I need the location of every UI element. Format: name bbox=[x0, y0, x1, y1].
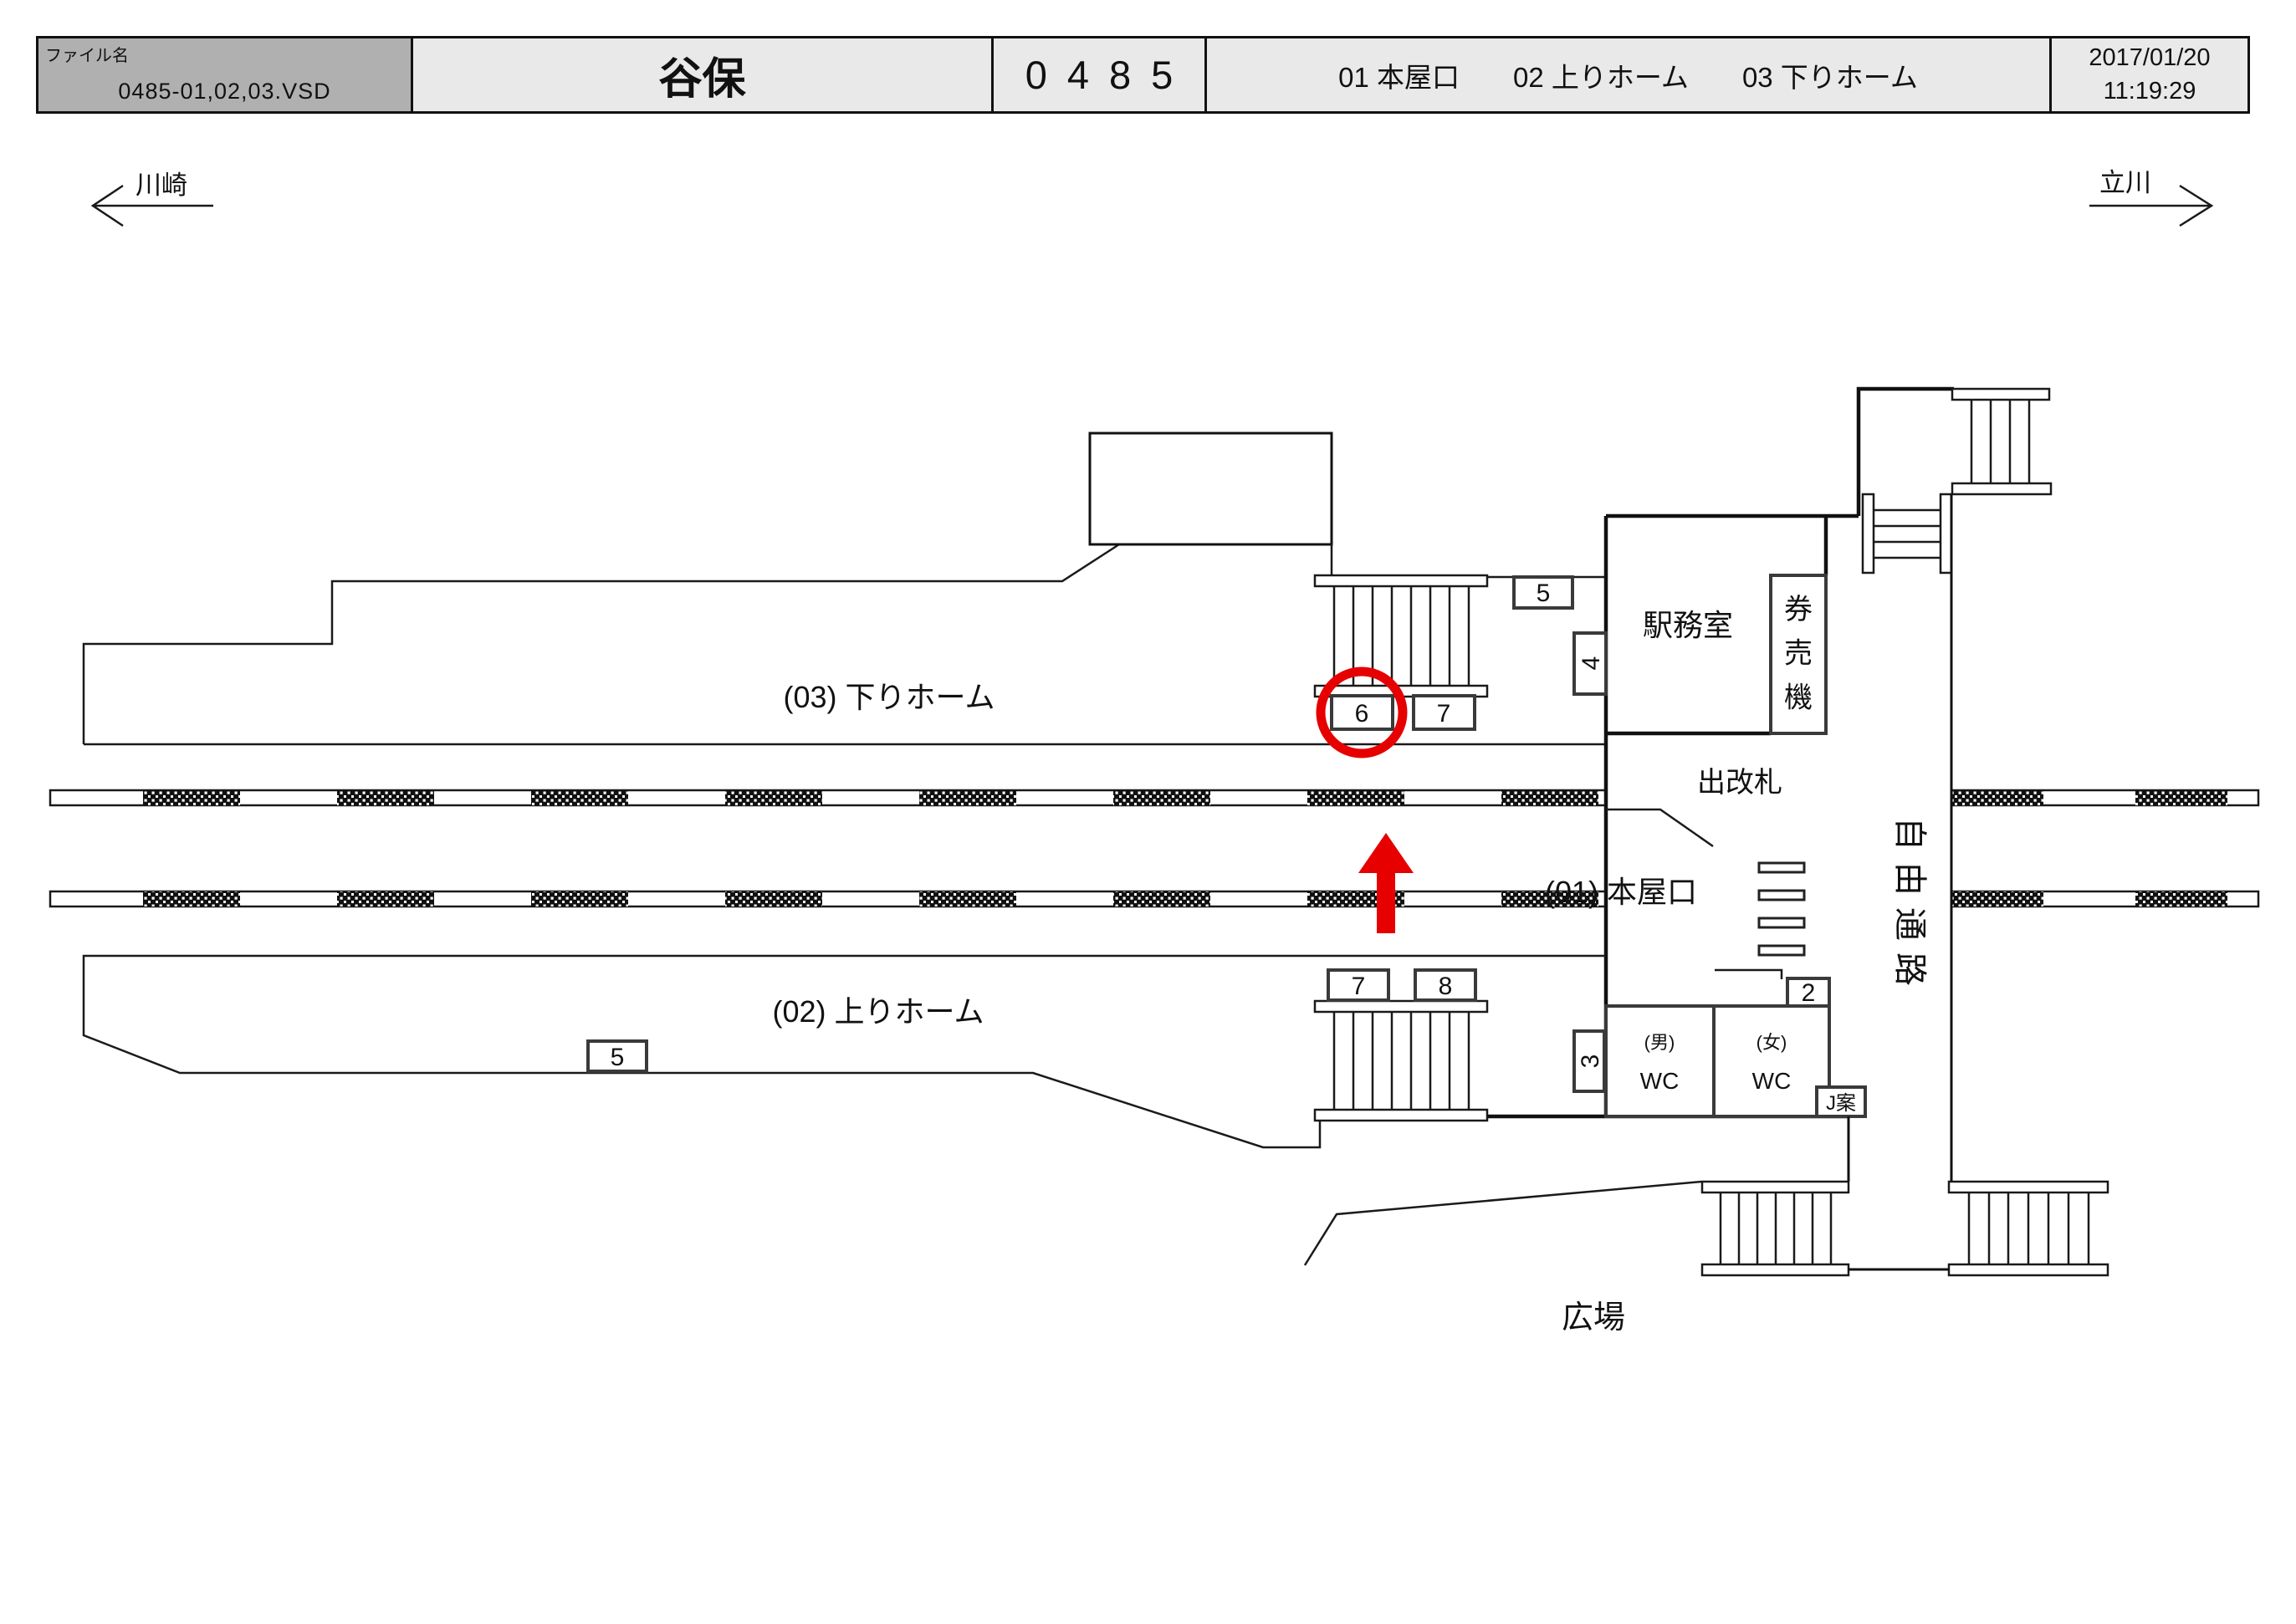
ticket-gate-label: 出改札 bbox=[1697, 767, 1782, 799]
free-passage-label: 自由通路 bbox=[1891, 817, 1928, 998]
wc-men-note: (男) bbox=[1644, 1032, 1675, 1053]
highlight-arrow-icon bbox=[1358, 833, 1414, 933]
box-upper-5: 5 bbox=[1537, 580, 1551, 607]
box-lower-8: 8 bbox=[1439, 973, 1453, 1000]
stairs-down-platform bbox=[1315, 1001, 1487, 1121]
stairs-plaza-east bbox=[1949, 1182, 2108, 1275]
wc-women-room bbox=[1714, 1006, 1829, 1116]
platform-building bbox=[1090, 433, 1332, 544]
direction-kawasaki: 川崎 bbox=[93, 171, 213, 226]
wc-men-label: WC bbox=[1640, 1068, 1680, 1094]
box-lower-5: 5 bbox=[611, 1044, 625, 1071]
station-office-label: 駅務室 bbox=[1643, 608, 1733, 642]
box-side-3: 3 bbox=[1577, 1055, 1604, 1069]
wc-women-note: (女) bbox=[1757, 1032, 1787, 1053]
direction-left-label: 川崎 bbox=[136, 171, 187, 200]
stairs-north bbox=[1952, 389, 2051, 494]
box-upper-6: 6 bbox=[1355, 700, 1369, 728]
box-side-2: 2 bbox=[1802, 979, 1816, 1007]
plaza-boundary bbox=[1305, 1182, 1702, 1265]
direction-tachikawa: 立川 bbox=[2089, 168, 2212, 226]
plaza-label: 広場 bbox=[1562, 1300, 1625, 1335]
j-sign-label: J案 bbox=[1826, 1092, 1856, 1115]
box-lower-7: 7 bbox=[1352, 973, 1366, 1000]
box-upper-7: 7 bbox=[1437, 700, 1451, 728]
stairs-landing-steps bbox=[1863, 494, 1951, 573]
ticket-gate-lanes bbox=[1759, 863, 1804, 955]
wc-men-room bbox=[1606, 1006, 1714, 1116]
station-map: 川崎 立川 bbox=[0, 0, 2296, 1624]
platform-down-label: (03) 下りホーム bbox=[784, 680, 995, 714]
box-upper-4: 4 bbox=[1578, 656, 1605, 671]
platform-up-label: (02) 上りホーム bbox=[773, 994, 984, 1029]
main-gate-label: (01) 本屋口 bbox=[1545, 875, 1697, 909]
platform-down-outline bbox=[84, 544, 1119, 744]
station-diagram-page: ファイル名 0485-01,02,03.VSD 谷保 0485 01 本屋口 0… bbox=[0, 0, 2296, 1624]
stairs-plaza-west bbox=[1702, 1182, 1849, 1275]
direction-right-label: 立川 bbox=[2099, 168, 2151, 197]
wc-women-label: WC bbox=[1752, 1068, 1792, 1094]
free-passage: 自由通路 広場 bbox=[1305, 389, 2108, 1335]
ticket-machine-label: 券売機 bbox=[1784, 594, 1813, 713]
gate-area-wall bbox=[1606, 809, 1713, 846]
